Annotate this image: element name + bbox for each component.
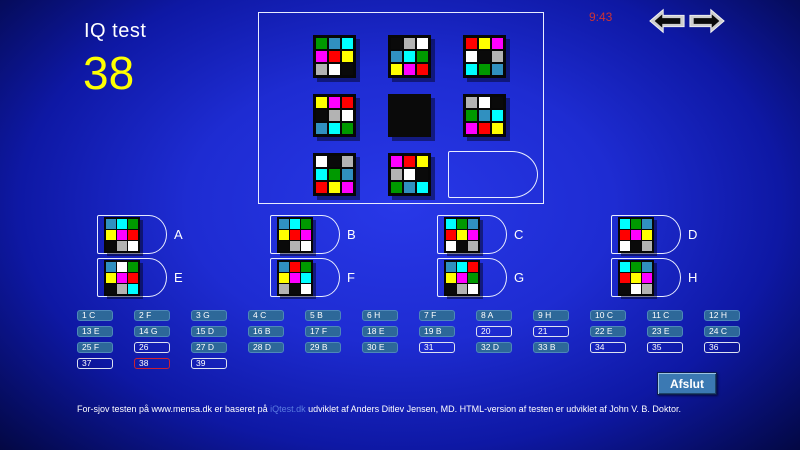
pattern-cell xyxy=(106,241,116,251)
pattern-cell xyxy=(301,284,311,294)
pattern-cell xyxy=(446,230,456,240)
answer-box-4[interactable]: 4 C xyxy=(248,310,284,321)
answer-box-21[interactable]: 21 xyxy=(533,326,569,337)
answer-box-32[interactable]: 32 D xyxy=(476,342,512,353)
pattern-cell xyxy=(290,284,300,294)
pattern-cell xyxy=(446,273,456,283)
pattern-cell xyxy=(468,262,478,272)
pattern-cell xyxy=(479,97,490,108)
option-G[interactable]: G xyxy=(437,258,524,297)
pattern-cell xyxy=(279,284,289,294)
pattern-cell xyxy=(106,219,116,229)
pattern-tile xyxy=(313,35,356,78)
pattern-cell xyxy=(417,169,428,180)
pattern-cell xyxy=(466,123,477,134)
pattern-cell xyxy=(446,219,456,229)
pattern-cell xyxy=(117,241,127,251)
answer-box-10[interactable]: 10 C xyxy=(590,310,626,321)
pattern-cell xyxy=(404,64,415,75)
answer-box-7[interactable]: 7 F xyxy=(419,310,455,321)
puzzle-cell xyxy=(297,27,372,86)
pattern-tile xyxy=(313,94,356,137)
option-H[interactable]: H xyxy=(611,258,697,297)
option-letter: G xyxy=(514,270,524,285)
black-tile xyxy=(388,94,431,137)
pattern-cell xyxy=(492,123,503,134)
pattern-cell xyxy=(391,64,402,75)
arrow-left-icon xyxy=(648,8,686,34)
pattern-cell xyxy=(316,64,327,75)
puzzle-cell xyxy=(372,145,447,204)
timer: 9:43 xyxy=(589,10,612,24)
answer-box-17[interactable]: 17 F xyxy=(305,326,341,337)
pattern-cell xyxy=(479,51,490,62)
pattern-tile xyxy=(444,260,480,296)
answer-box-3[interactable]: 3 G xyxy=(191,310,227,321)
option-shape[interactable] xyxy=(437,215,507,254)
footer-text-after: udviklet af Anders Ditlev Jensen, MD. HT… xyxy=(306,404,681,414)
question-number: 38 xyxy=(83,50,134,96)
nav-arrows xyxy=(648,8,726,34)
pattern-cell xyxy=(457,273,467,283)
pattern-cell xyxy=(279,273,289,283)
pattern-cell xyxy=(468,241,478,251)
pattern-cell xyxy=(329,182,340,193)
pattern-cell xyxy=(479,110,490,121)
option-letter: D xyxy=(688,227,697,242)
iqtest-link[interactable]: iQtest.dk xyxy=(270,404,306,414)
arrow-right-icon xyxy=(688,8,726,34)
pattern-cell xyxy=(620,284,630,294)
pattern-cell xyxy=(404,51,415,62)
puzzle-cell xyxy=(372,27,447,86)
pattern-cell xyxy=(404,182,415,193)
pattern-cell xyxy=(457,219,467,229)
pattern-cell xyxy=(128,262,138,272)
pattern-cell xyxy=(457,284,467,294)
pattern-cell xyxy=(128,284,138,294)
pattern-cell xyxy=(642,273,652,283)
pattern-cell xyxy=(128,273,138,283)
option-shape[interactable] xyxy=(437,258,507,297)
pattern-cell xyxy=(117,284,127,294)
pattern-cell xyxy=(279,230,289,240)
pattern-cell xyxy=(106,262,116,272)
finish-button[interactable]: Afslut xyxy=(657,372,717,395)
option-letter: B xyxy=(347,227,356,242)
pattern-cell xyxy=(404,156,415,167)
pattern-cell xyxy=(301,273,311,283)
answer-box-12[interactable]: 12 H xyxy=(704,310,740,321)
pattern-cell xyxy=(417,51,428,62)
pattern-cell xyxy=(631,219,641,229)
pattern-cell xyxy=(417,64,428,75)
answer-box-31[interactable]: 31 xyxy=(419,342,455,353)
pattern-cell xyxy=(128,241,138,251)
pattern-cell xyxy=(290,262,300,272)
pattern-cell xyxy=(417,156,428,167)
answer-box-1[interactable]: 1 C xyxy=(77,310,113,321)
pattern-cell xyxy=(492,51,503,62)
pattern-cell xyxy=(290,230,300,240)
pattern-cell xyxy=(117,262,127,272)
pattern-cell xyxy=(631,262,641,272)
pattern-cell xyxy=(404,169,415,180)
pattern-cell xyxy=(342,97,353,108)
pattern-cell xyxy=(329,123,340,134)
pattern-cell xyxy=(391,169,402,180)
next-button[interactable] xyxy=(688,8,726,34)
pattern-cell xyxy=(290,241,300,251)
pattern-cell xyxy=(342,51,353,62)
pattern-cell xyxy=(620,230,630,240)
pattern-cell xyxy=(342,169,353,180)
pattern-cell xyxy=(329,156,340,167)
pattern-cell xyxy=(117,219,127,229)
answer-box-9[interactable]: 9 H xyxy=(533,310,569,321)
pattern-cell xyxy=(329,97,340,108)
option-shape[interactable] xyxy=(270,215,340,254)
pattern-cell xyxy=(479,38,490,49)
pattern-cell xyxy=(316,110,327,121)
pattern-cell xyxy=(457,241,467,251)
pattern-tile xyxy=(104,217,140,253)
pattern-cell xyxy=(391,51,402,62)
answer-box-19[interactable]: 19 B xyxy=(419,326,455,337)
pattern-cell xyxy=(117,230,127,240)
pattern-cell xyxy=(342,156,353,167)
answer-box-6[interactable]: 6 H xyxy=(362,310,398,321)
pattern-cell xyxy=(316,97,327,108)
answer-box-8[interactable]: 8 A xyxy=(476,310,512,321)
pattern-cell xyxy=(342,38,353,49)
iq-test-app: { "header": { "title": "IQ test", "quest… xyxy=(0,0,800,450)
pattern-cell xyxy=(316,38,327,49)
answer-box-20[interactable]: 20 xyxy=(476,326,512,337)
pattern-cell xyxy=(329,169,340,180)
pattern-cell xyxy=(128,219,138,229)
pattern-cell xyxy=(468,219,478,229)
pattern-cell xyxy=(642,219,652,229)
pattern-cell xyxy=(446,262,456,272)
pattern-cell xyxy=(391,182,402,193)
answer-box-30[interactable]: 30 E xyxy=(362,342,398,353)
pattern-cell xyxy=(642,284,652,294)
pattern-cell xyxy=(301,230,311,240)
pattern-tile xyxy=(463,35,506,78)
answer-box-14[interactable]: 14 G xyxy=(134,326,170,337)
pattern-tile xyxy=(388,153,431,196)
prev-button[interactable] xyxy=(648,8,686,34)
puzzle-cell xyxy=(297,86,372,145)
answer-sheet: 1 C2 F3 G4 C5 B6 H7 F8 A9 H10 C11 C12 H1… xyxy=(77,310,740,369)
pattern-cell xyxy=(316,156,327,167)
pattern-cell xyxy=(479,64,490,75)
answer-box-34[interactable]: 34 xyxy=(590,342,626,353)
answer-box-38[interactable]: 38 xyxy=(134,358,170,369)
answer-box-28[interactable]: 28 D xyxy=(248,342,284,353)
answer-box-23[interactable]: 23 E xyxy=(647,326,683,337)
pattern-cell xyxy=(631,273,641,283)
option-shape[interactable] xyxy=(97,215,167,254)
pattern-cell xyxy=(301,262,311,272)
pattern-cell xyxy=(329,64,340,75)
puzzle-cell xyxy=(447,86,522,145)
option-C[interactable]: C xyxy=(437,215,523,254)
pattern-cell xyxy=(466,97,477,108)
pattern-cell xyxy=(446,241,456,251)
pattern-cell xyxy=(106,273,116,283)
option-shape[interactable] xyxy=(611,258,681,297)
pattern-cell xyxy=(301,219,311,229)
footer-text-before: For-sjov testen på www.mensa.dk er baser… xyxy=(77,404,270,414)
pattern-cell xyxy=(117,273,127,283)
answer-box-35[interactable]: 35 xyxy=(647,342,683,353)
option-shape[interactable] xyxy=(611,215,681,254)
option-E[interactable]: E xyxy=(97,258,183,297)
pattern-cell xyxy=(466,64,477,75)
option-letter: F xyxy=(347,270,355,285)
answer-box-25[interactable]: 25 F xyxy=(77,342,113,353)
pattern-cell xyxy=(417,182,428,193)
pattern-cell xyxy=(279,262,289,272)
pattern-cell xyxy=(301,241,311,251)
answer-box-18[interactable]: 18 E xyxy=(362,326,398,337)
puzzle-cell xyxy=(447,27,522,86)
option-letter: A xyxy=(174,227,183,242)
pattern-cell xyxy=(457,230,467,240)
pattern-cell xyxy=(468,273,478,283)
pattern-cell xyxy=(316,51,327,62)
pattern-cell xyxy=(492,97,503,108)
answer-box-37[interactable]: 37 xyxy=(77,358,113,369)
pattern-cell xyxy=(290,219,300,229)
pattern-tile xyxy=(463,94,506,137)
pattern-tile xyxy=(104,260,140,296)
pattern-cell xyxy=(620,273,630,283)
pattern-cell xyxy=(468,230,478,240)
pattern-cell xyxy=(631,284,641,294)
pattern-cell xyxy=(631,230,641,240)
pattern-cell xyxy=(417,38,428,49)
pattern-tile xyxy=(277,217,313,253)
pattern-cell xyxy=(391,38,402,49)
pattern-tile xyxy=(277,260,313,296)
pattern-cell xyxy=(466,51,477,62)
option-shape[interactable] xyxy=(97,258,167,297)
answer-box-29[interactable]: 29 B xyxy=(305,342,341,353)
answer-box-11[interactable]: 11 C xyxy=(647,310,683,321)
answer-box-36[interactable]: 36 xyxy=(704,342,740,353)
answer-box-13[interactable]: 13 E xyxy=(77,326,113,337)
pattern-cell xyxy=(342,182,353,193)
answer-box-5[interactable]: 5 B xyxy=(305,310,341,321)
puzzle-cell xyxy=(372,86,447,145)
pattern-cell xyxy=(342,110,353,121)
pattern-cell xyxy=(290,273,300,283)
pattern-cell xyxy=(342,64,353,75)
pattern-cell xyxy=(279,241,289,251)
puzzle-panel xyxy=(258,12,544,204)
pattern-tile xyxy=(313,153,356,196)
pattern-cell xyxy=(329,38,340,49)
pattern-cell xyxy=(479,123,490,134)
answer-box-39[interactable]: 39 xyxy=(191,358,227,369)
pattern-cell xyxy=(457,262,467,272)
option-D[interactable]: D xyxy=(611,215,697,254)
pattern-cell xyxy=(342,123,353,134)
page-title: IQ test xyxy=(84,20,146,43)
pattern-cell xyxy=(620,262,630,272)
pattern-cell xyxy=(329,51,340,62)
answer-box-33[interactable]: 33 B xyxy=(533,342,569,353)
pattern-cell xyxy=(642,241,652,251)
pattern-cell xyxy=(106,230,116,240)
missing-piece-slot xyxy=(448,151,538,198)
pattern-tile xyxy=(388,35,431,78)
option-A[interactable]: A xyxy=(97,215,183,254)
answer-box-15[interactable]: 15 D xyxy=(191,326,227,337)
option-letter: H xyxy=(688,270,697,285)
option-B[interactable]: B xyxy=(270,215,356,254)
pattern-tile xyxy=(618,260,654,296)
pattern-tile xyxy=(444,217,480,253)
pattern-cell xyxy=(316,182,327,193)
pattern-cell xyxy=(642,262,652,272)
pattern-cell xyxy=(329,110,340,121)
answer-box-26[interactable]: 26 xyxy=(134,342,170,353)
pattern-cell xyxy=(391,156,402,167)
pattern-tile xyxy=(618,217,654,253)
pattern-cell xyxy=(631,241,641,251)
option-letter: E xyxy=(174,270,183,285)
option-letter: C xyxy=(514,227,523,242)
pattern-cell xyxy=(492,110,503,121)
option-F[interactable]: F xyxy=(270,258,355,297)
pattern-cell xyxy=(620,219,630,229)
pattern-cell xyxy=(468,284,478,294)
answer-box-16[interactable]: 16 B xyxy=(248,326,284,337)
pattern-cell xyxy=(466,110,477,121)
pattern-cell xyxy=(279,219,289,229)
option-shape[interactable] xyxy=(270,258,340,297)
pattern-cell xyxy=(128,230,138,240)
pattern-cell xyxy=(620,241,630,251)
pattern-cell xyxy=(492,64,503,75)
pattern-cell xyxy=(316,123,327,134)
pattern-cell xyxy=(492,38,503,49)
footer-credits: For-sjov testen på www.mensa.dk er baser… xyxy=(77,404,681,414)
pattern-cell xyxy=(642,230,652,240)
pattern-cell xyxy=(316,169,327,180)
pattern-cell xyxy=(106,284,116,294)
pattern-cell xyxy=(404,38,415,49)
answer-box-27[interactable]: 27 D xyxy=(191,342,227,353)
answer-box-2[interactable]: 2 F xyxy=(134,310,170,321)
answer-box-22[interactable]: 22 E xyxy=(590,326,626,337)
puzzle-cell xyxy=(297,145,372,204)
answer-box-24[interactable]: 24 C xyxy=(704,326,740,337)
pattern-cell xyxy=(466,38,477,49)
pattern-cell xyxy=(446,284,456,294)
